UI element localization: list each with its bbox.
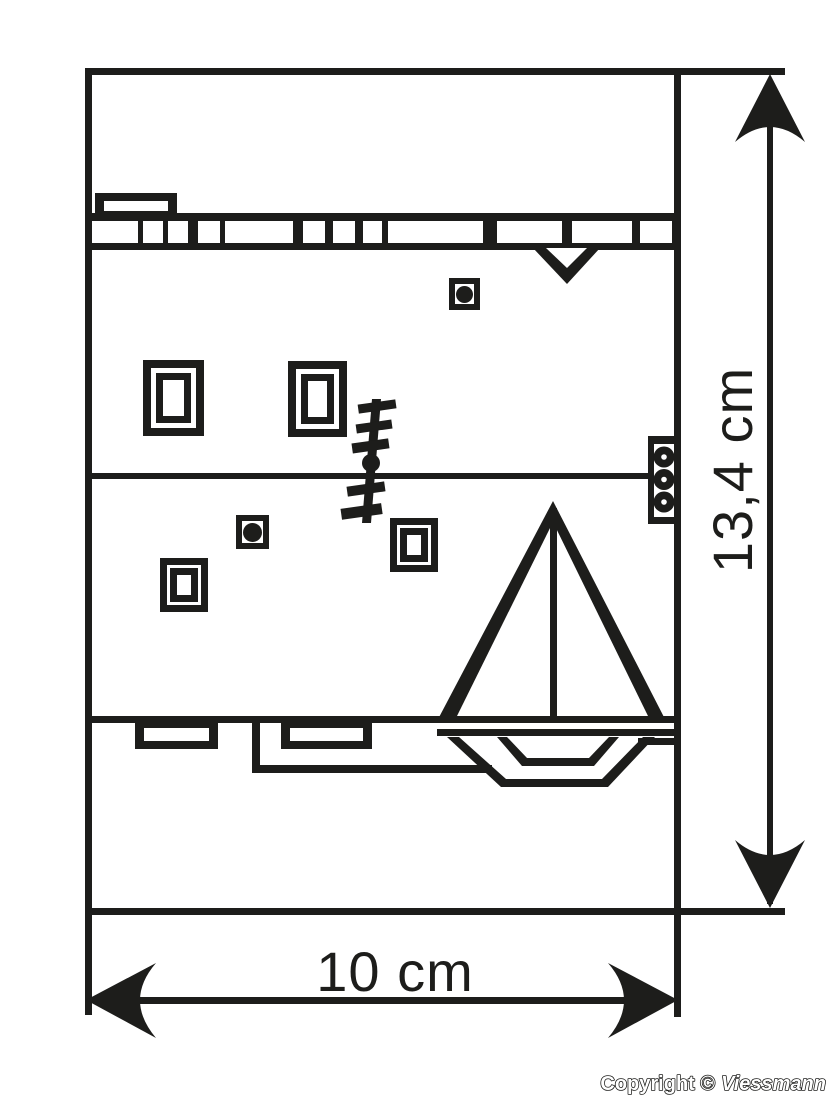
left-edge-line (85, 68, 92, 1015)
roof-band-cells (91, 221, 672, 243)
copyright-text: Copyright ©Viessmann (600, 1073, 826, 1095)
roof-tab (95, 193, 177, 220)
dimension-drawing-canvas: 13,4 cm 10 cm Copyright ©Viessmann (0, 0, 833, 1100)
window-1 (143, 360, 204, 436)
right-edge-line (674, 68, 681, 1017)
window-4 (390, 518, 438, 572)
porthole-2 (236, 515, 269, 549)
window-3 (160, 558, 208, 612)
hull-edge-connector (638, 738, 677, 745)
bottom-tab-1 (135, 716, 218, 749)
sailboat-deck-line (437, 729, 675, 736)
width-dimension-label: 10 cm (316, 940, 474, 1003)
height-dimension-label: 13,4 cm (701, 367, 764, 573)
sailboat-mast (550, 508, 557, 716)
porthole-1 (449, 278, 480, 310)
copyright-prefix: Copyright © (600, 1073, 715, 1095)
bottom-tab-2 (281, 716, 372, 749)
window-2 (288, 361, 347, 437)
brand-name: Viessmann (721, 1073, 826, 1095)
technical-drawing-page: 13,4 cm 10 cm Copyright ©Viessmann (0, 0, 833, 1100)
height-dimension-line (767, 82, 773, 904)
